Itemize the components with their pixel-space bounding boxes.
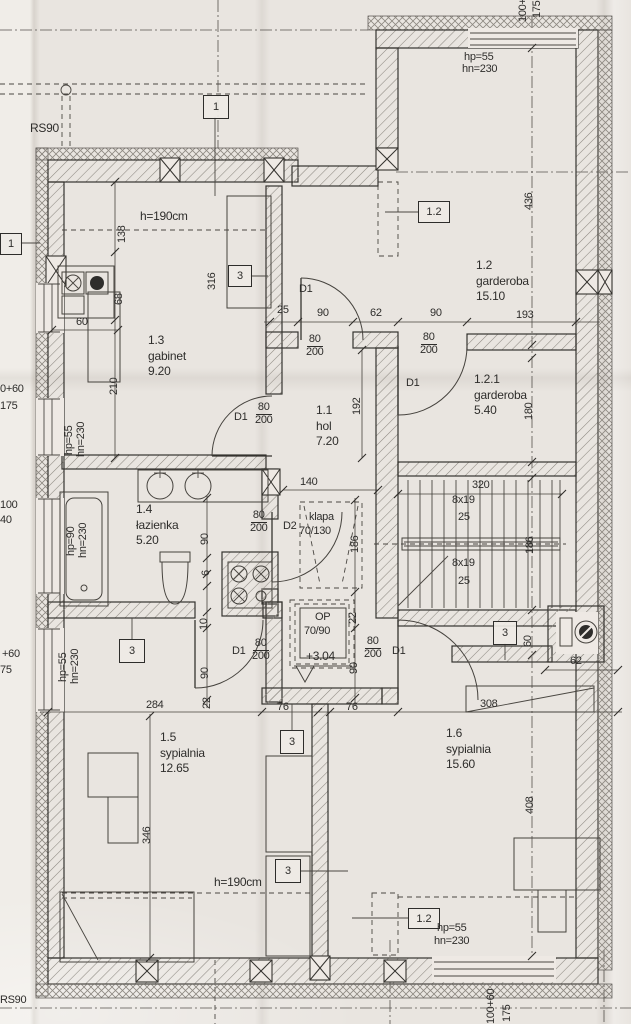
door-label-d2-bathroom: D2 <box>283 521 296 532</box>
edge-dim-0-60: 0+60 <box>0 384 24 395</box>
edge-dim-40: 40 <box>0 515 12 526</box>
door-size-garderoba12: 80200 <box>306 334 323 358</box>
dim-76a: 76 <box>277 702 289 713</box>
dim-25: 25 <box>277 305 289 316</box>
hp-label-bedroom15: hp=55 <box>58 653 69 682</box>
door-size-gabinet: 80200 <box>255 402 272 426</box>
op-size-label: 70/90 <box>304 626 330 637</box>
dim-140: 140 <box>300 477 317 488</box>
dim-192: 192 <box>352 398 363 415</box>
door-label-d1-garderoba121: D1 <box>406 378 419 389</box>
dim-186a: 186 <box>525 537 536 554</box>
hp-label-bathroom: hp=90 <box>66 527 77 556</box>
floor-plan-canvas: 1.3 gabinet 9.20 1.1 hol 7.20 1.2 garder… <box>0 0 631 1024</box>
edge-dim-175-left: 175 <box>0 401 17 412</box>
room-label-sypialnia15: 1.5 sypialnia 12.65 <box>160 730 205 777</box>
dim-138: 138 <box>117 226 128 243</box>
ref-box-12a: 1.2 <box>418 201 450 223</box>
stairs-steps-label-lower: 8x19 <box>452 558 475 569</box>
door-label-d1-bedroom15: D1 <box>232 646 245 657</box>
dim-284: 284 <box>146 700 163 711</box>
hn-label-bottom: hn=230 <box>434 936 469 947</box>
dim-76b: 76 <box>346 702 358 713</box>
op-label: OP <box>315 612 330 623</box>
dim-308: 308 <box>480 699 497 710</box>
room-label-garderoba121: 1.2.1 garderoba 5.40 <box>474 372 527 419</box>
ref-box-1b: 1 <box>0 233 22 255</box>
dim-90b: 90 <box>430 308 442 319</box>
dim-436: 436 <box>524 193 535 210</box>
door-size-bedroom15: 80200 <box>252 638 269 662</box>
level-marker-label: +3.04 <box>306 650 335 662</box>
ref-box-3e: 3 <box>275 859 301 883</box>
hp-label-bottom: hp=55 <box>437 923 466 934</box>
edge-dim-100plus: 100+ <box>518 0 529 22</box>
hp-label-top: hp=55 <box>464 52 493 63</box>
door-label-d1-garderoba12: D1 <box>299 284 312 295</box>
dim-346: 346 <box>142 827 153 844</box>
height-190-label-gabinet: h=190cm <box>140 210 188 222</box>
dim-193: 193 <box>516 310 533 321</box>
room-label-sypialnia16: 1.6 sypialnia 15.60 <box>446 726 491 773</box>
klapa-label: klapa <box>309 512 334 523</box>
rs90-label-top: RS90 <box>30 122 59 134</box>
rs90-label-bottom: RS90 <box>0 995 26 1006</box>
dim-186b: 186 <box>350 536 361 553</box>
door-size-garderoba121: 80200 <box>420 332 437 356</box>
bed-15 <box>60 892 194 962</box>
ref-box-3a: 3 <box>228 265 252 287</box>
door-size-bathroom: 80200 <box>250 510 267 534</box>
edge-dim-plus60: +60 <box>2 649 20 660</box>
hn-label-bedroom15: hn=230 <box>70 649 81 684</box>
washbasin-icons <box>138 470 268 502</box>
dim-6: 6 <box>201 570 212 576</box>
room-label-hol: 1.1 hol 7.20 <box>316 403 339 450</box>
window-gabinet <box>36 398 64 456</box>
window-kitchen <box>36 283 64 333</box>
dim-90d: 90 <box>200 667 211 679</box>
hn-label-top: hn=230 <box>462 64 497 75</box>
toilet-icon <box>160 552 190 604</box>
ref-box-1: 1 <box>203 95 229 119</box>
dim-60b: 60 <box>523 635 534 647</box>
door-size-bedroom16: 80200 <box>364 636 381 660</box>
room-label-gabinet: 1.3 gabinet 9.20 <box>148 333 186 380</box>
dim-408: 408 <box>525 797 536 814</box>
stairs-width-label-lower: 25 <box>458 576 470 587</box>
hn-label-gabinet: hn=230 <box>76 422 87 457</box>
hn-label-bathroom: hn=230 <box>78 523 89 558</box>
door-label-d1-gabinet: D1 <box>234 412 247 423</box>
edge-dim-75: 75 <box>0 665 12 676</box>
stairs-width-label-upper: 25 <box>458 512 470 523</box>
dim-68: 68 <box>114 293 125 305</box>
dim-62b: 62 <box>570 656 582 667</box>
dim-10: 10 <box>199 618 210 630</box>
stairs-run-label: 320 <box>472 480 489 491</box>
dim-22b: 22 <box>348 612 359 624</box>
klapa-size-label: 70/130 <box>299 526 331 537</box>
edge-dim-100-60: 100+60 <box>486 989 497 1024</box>
room-label-lazienka: 1.4 łazienka 5.20 <box>136 502 178 549</box>
edge-dim-100: 100 <box>0 500 17 511</box>
dim-210: 210 <box>109 378 120 395</box>
ref-box-3c: 3 <box>280 730 304 754</box>
dim-62a: 62 <box>370 308 382 319</box>
stairs-steps-label-upper: 8x19 <box>452 495 475 506</box>
dim-180: 180 <box>524 403 535 420</box>
edge-dim-175-top: 175 <box>532 1 543 18</box>
dim-90c: 90 <box>200 533 211 545</box>
edge-dim-175-bottom: 175 <box>502 1005 513 1022</box>
height-190-label-bedroom: h=190cm <box>214 876 262 888</box>
room-label-garderoba12: 1.2 garderoba 15.10 <box>476 258 529 305</box>
dim-316: 316 <box>207 273 218 290</box>
window-bottom <box>432 956 556 982</box>
hp-label-gabinet: hp=55 <box>64 426 75 455</box>
door-label-d1-bedroom16: D1 <box>392 646 405 657</box>
dim-90a: 90 <box>317 308 329 319</box>
dim-22a: 22 <box>202 697 213 709</box>
ref-box-3d: 3 <box>493 621 517 645</box>
dim-60: 60 <box>76 317 88 328</box>
ref-box-12b: 1.2 <box>408 908 440 929</box>
ref-box-3b: 3 <box>119 639 145 663</box>
dim-90e: 90 <box>349 662 360 674</box>
window-top <box>468 28 578 48</box>
